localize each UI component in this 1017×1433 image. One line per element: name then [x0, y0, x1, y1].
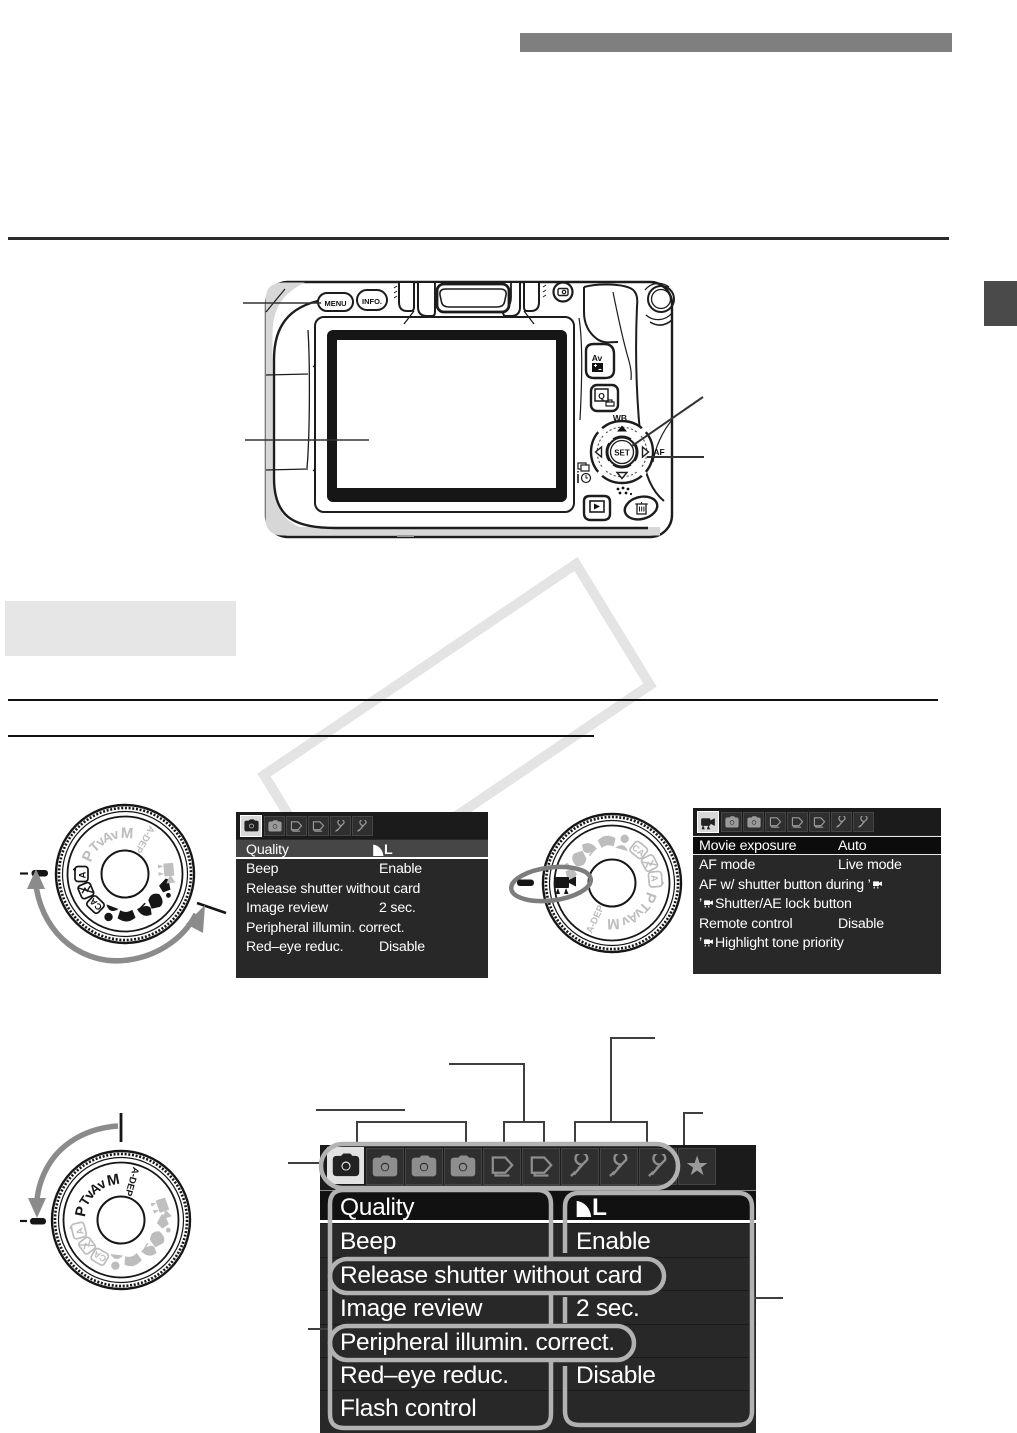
svg-text:A: A — [648, 874, 660, 882]
svg-text:AF: AF — [653, 447, 664, 457]
svg-text:SET: SET — [614, 449, 630, 458]
svg-text:M: M — [607, 915, 620, 932]
svg-text:A: A — [78, 871, 89, 878]
svg-text:M: M — [120, 825, 133, 843]
svg-text:Q: Q — [598, 391, 605, 401]
svg-text:MENU: MENU — [324, 299, 346, 308]
svg-text:INFO.: INFO. — [362, 297, 382, 306]
svg-text:Av: Av — [592, 353, 603, 363]
